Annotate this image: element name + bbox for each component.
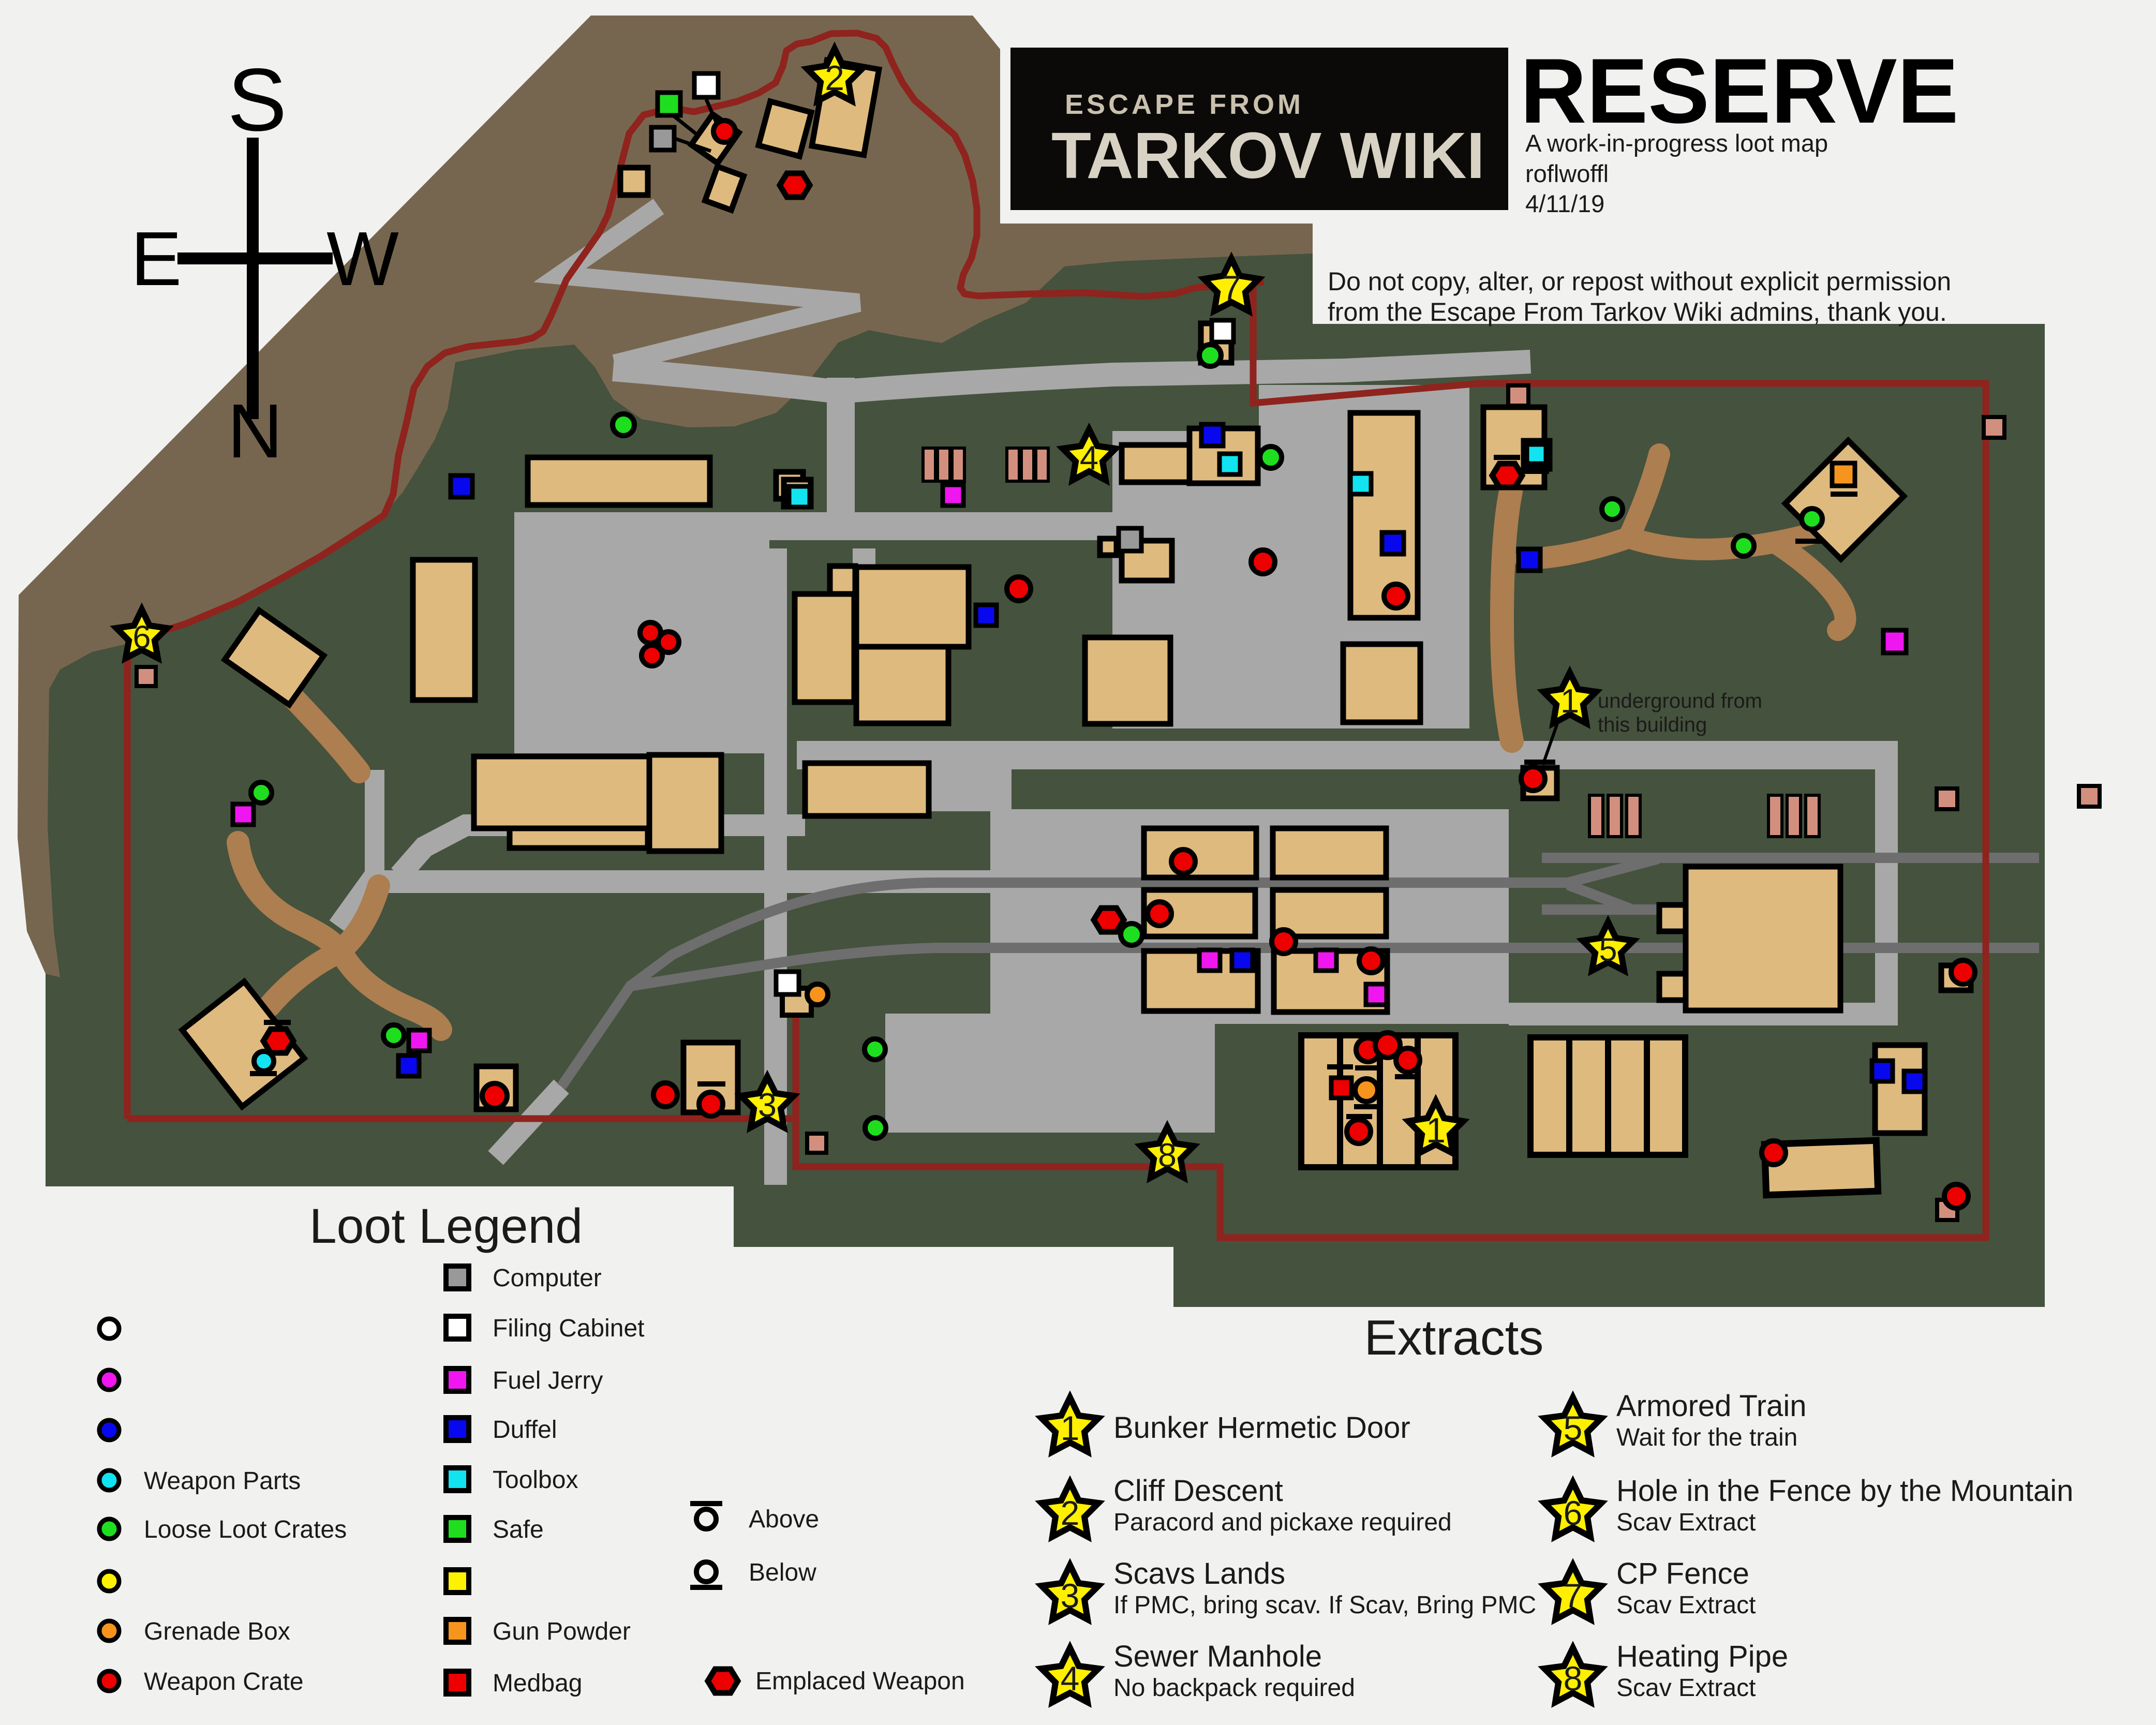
svg-text:from the Escape From Tarkov Wi: from the Escape From Tarkov Wiki admins,…	[1328, 298, 1947, 326]
svg-text:Weapon Crate: Weapon Crate	[144, 1668, 304, 1696]
svg-text:Cliff Descent: Cliff Descent	[1113, 1474, 1283, 1508]
svg-text:N: N	[228, 389, 283, 474]
svg-text:Loose Loot Crates: Loose Loot Crates	[144, 1516, 347, 1543]
svg-text:W: W	[326, 216, 399, 302]
svg-text:If PMC, bring scav. If Scav, B: If PMC, bring scav. If Scav, Bring PMC	[1113, 1592, 1536, 1619]
svg-text:this building: this building	[1598, 713, 1707, 736]
svg-text:4: 4	[1080, 439, 1098, 477]
svg-text:roflwoffl: roflwoffl	[1525, 160, 1609, 187]
svg-text:Scav Extract: Scav Extract	[1616, 1674, 1756, 1702]
svg-text:Armored Train: Armored Train	[1616, 1389, 1806, 1423]
svg-text:Bunker Hermetic Door: Bunker Hermetic Door	[1113, 1411, 1410, 1445]
svg-text:Scav Extract: Scav Extract	[1616, 1509, 1756, 1536]
svg-text:Computer: Computer	[493, 1265, 602, 1292]
svg-text:TARKOV WIKI: TARKOV WIKI	[1051, 119, 1485, 192]
svg-text:A work-in-progress loot map: A work-in-progress loot map	[1525, 129, 1828, 157]
svg-text:Medbag: Medbag	[493, 1670, 582, 1697]
svg-text:3: 3	[1061, 1577, 1080, 1615]
svg-text:7: 7	[1564, 1577, 1583, 1615]
svg-text:Scav Extract: Scav Extract	[1616, 1592, 1756, 1619]
svg-text:S: S	[228, 50, 287, 150]
svg-text:6: 6	[132, 619, 151, 656]
svg-text:4/11/19: 4/11/19	[1525, 190, 1604, 217]
svg-text:1: 1	[1426, 1111, 1446, 1150]
svg-text:Sewer Manhole: Sewer Manhole	[1113, 1640, 1322, 1673]
svg-text:Fuel Jerry: Fuel Jerry	[493, 1367, 603, 1394]
svg-text:Extracts: Extracts	[1364, 1310, 1544, 1365]
svg-text:1: 1	[1560, 682, 1579, 720]
svg-text:Loot Legend: Loot Legend	[309, 1199, 583, 1254]
svg-text:CP Fence: CP Fence	[1616, 1557, 1749, 1590]
svg-text:Scavs Lands: Scavs Lands	[1113, 1557, 1285, 1590]
svg-text:8: 8	[1564, 1659, 1583, 1698]
svg-text:6: 6	[1564, 1494, 1583, 1532]
svg-text:4: 4	[1061, 1659, 1080, 1698]
svg-text:1: 1	[1061, 1409, 1080, 1447]
svg-text:2: 2	[1061, 1494, 1080, 1532]
svg-text:2: 2	[825, 58, 844, 98]
svg-text:No backpack required: No backpack required	[1113, 1674, 1355, 1702]
svg-text:Below: Below	[749, 1559, 816, 1586]
svg-text:8: 8	[1158, 1136, 1177, 1174]
svg-text:Paracord and pickaxe required: Paracord and pickaxe required	[1113, 1509, 1452, 1536]
svg-text:Safe: Safe	[493, 1516, 544, 1543]
svg-text:7: 7	[1222, 269, 1241, 308]
svg-text:Duffel: Duffel	[493, 1416, 557, 1444]
svg-text:Gun Powder: Gun Powder	[493, 1618, 631, 1645]
svg-text:Weapon Parts: Weapon Parts	[144, 1467, 301, 1495]
svg-text:Hole in the Fence by the Mount: Hole in the Fence by the Mountain	[1616, 1474, 2073, 1508]
svg-text:Emplaced Weapon: Emplaced Weapon	[755, 1668, 965, 1695]
svg-text:5: 5	[1599, 932, 1617, 968]
svg-text:Toolbox: Toolbox	[493, 1466, 578, 1494]
svg-text:Heating Pipe: Heating Pipe	[1616, 1640, 1788, 1673]
svg-text:Grenade Box: Grenade Box	[144, 1618, 290, 1645]
svg-text:Wait for the train: Wait for the train	[1616, 1424, 1797, 1451]
svg-text:Above: Above	[749, 1506, 819, 1533]
svg-text:underground from: underground from	[1598, 690, 1762, 712]
svg-text:Do not copy, alter, or repost: Do not copy, alter, or repost without ex…	[1328, 267, 1951, 296]
svg-text:ESCAPE FROM: ESCAPE FROM	[1065, 89, 1304, 120]
svg-text:3: 3	[758, 1086, 777, 1124]
svg-text:E: E	[131, 216, 182, 302]
svg-text:RESERVE: RESERVE	[1520, 39, 1959, 142]
svg-text:5: 5	[1564, 1409, 1583, 1447]
svg-text:Filing Cabinet: Filing Cabinet	[493, 1315, 644, 1342]
